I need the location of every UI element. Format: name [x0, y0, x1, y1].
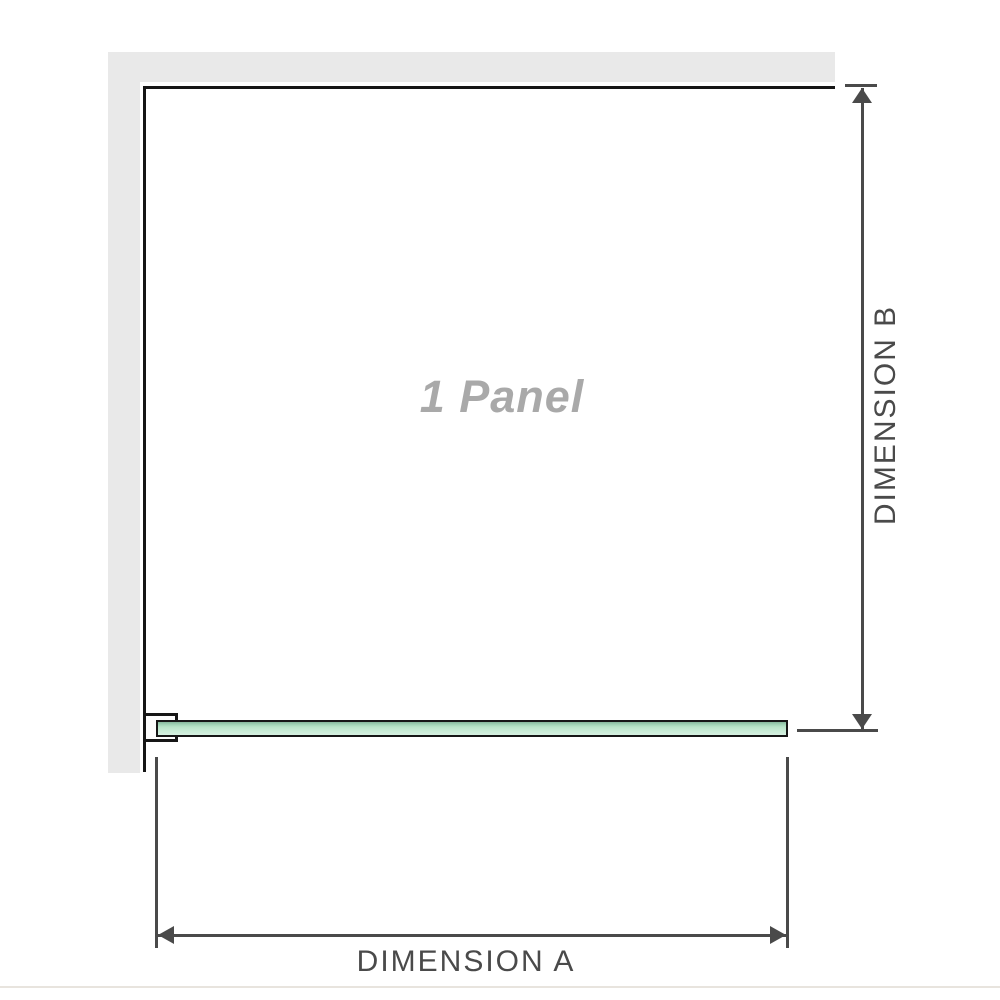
dimension-b-line: [861, 88, 864, 731]
arrow-left-icon: [158, 926, 174, 944]
arrow-down-icon: [852, 714, 872, 729]
dimension-b-top-tick: [845, 84, 877, 87]
arrow-right-icon: [770, 926, 786, 944]
dimension-a-left-extension-line: [155, 757, 158, 948]
dimension-a-line: [158, 934, 786, 937]
panel-area-outline: [143, 86, 835, 772]
wall-top-bar: [108, 52, 835, 82]
dimension-a-label: DIMENSION A: [357, 945, 576, 979]
panel-count-label: 1 Panel: [420, 371, 585, 423]
arrow-up-icon: [852, 88, 872, 103]
dimension-b-label: DIMENSION B: [869, 305, 903, 525]
wall-left-bar: [108, 52, 140, 773]
panel-dimension-diagram: 1 Panel DIMENSION B DIMENSION A: [0, 0, 1000, 1000]
bottom-divider: [0, 986, 1000, 988]
glass-panel: [156, 720, 788, 737]
dimension-b-bottom-tick: [797, 729, 878, 732]
dimension-a-right-extension-line: [786, 757, 789, 948]
